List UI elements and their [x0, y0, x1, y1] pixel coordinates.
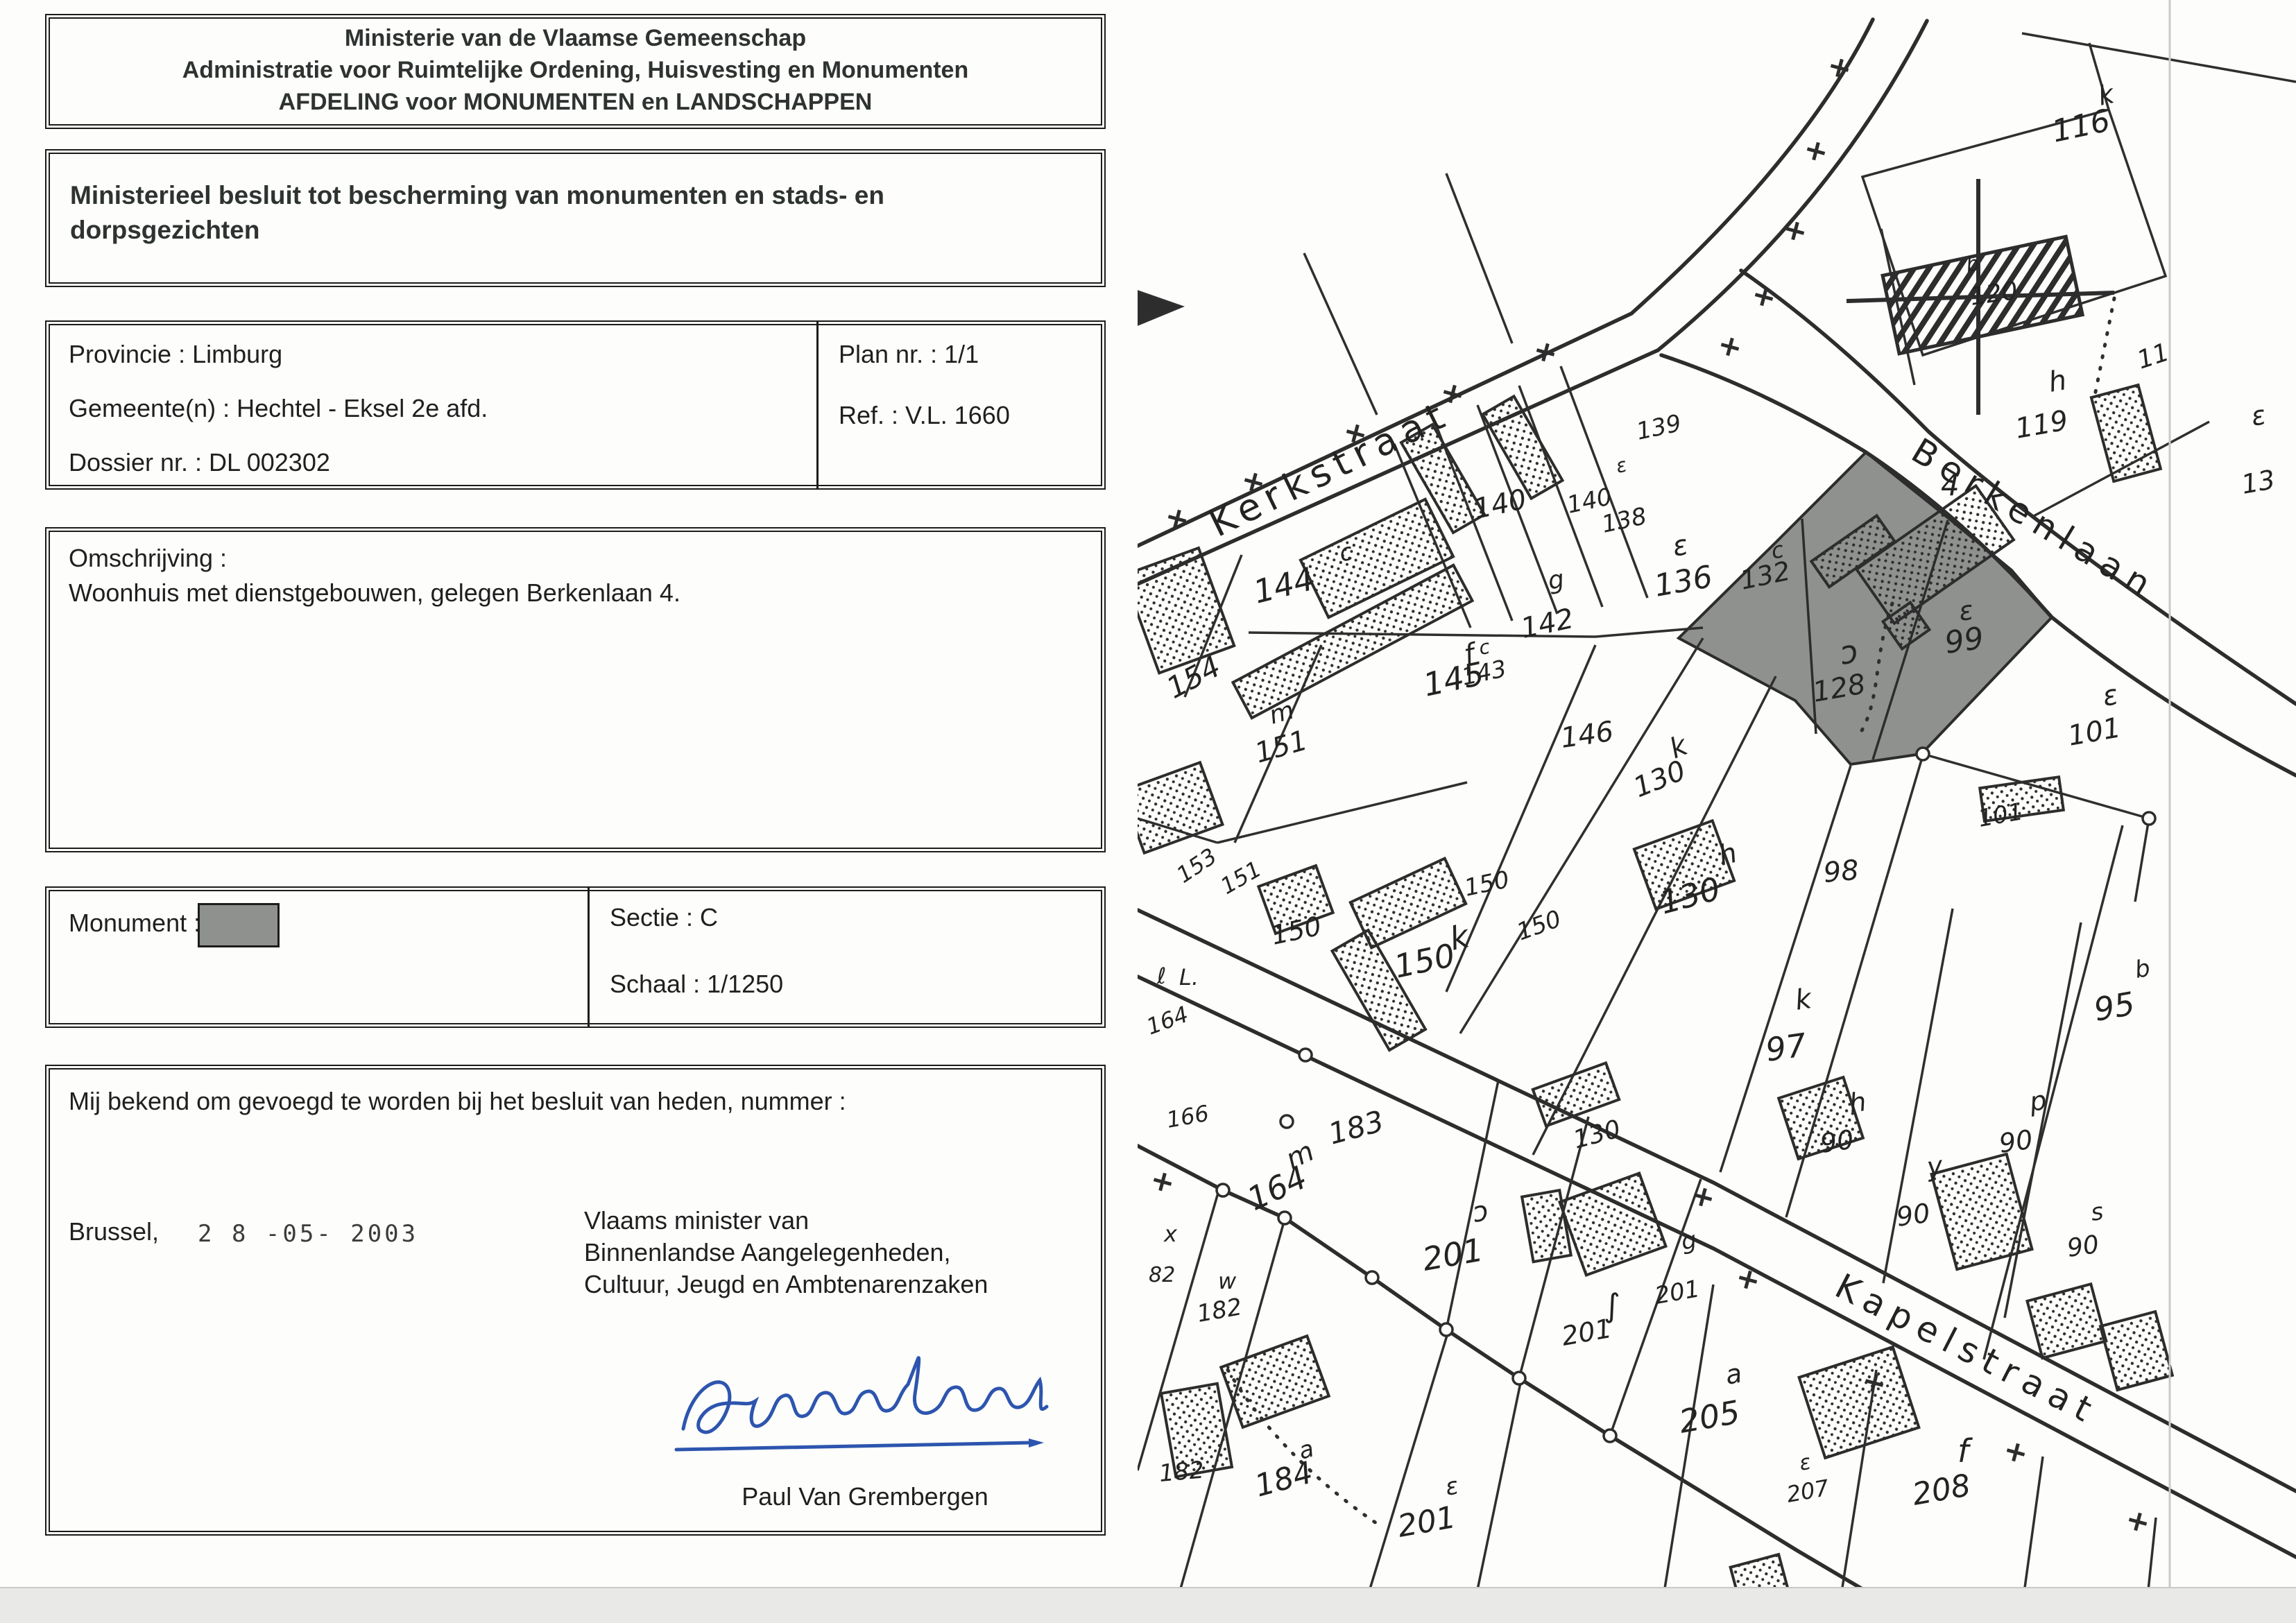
survey-point-icon — [1217, 1184, 1229, 1196]
parcel-label: 90 — [1894, 1198, 1932, 1233]
parcel-label: 99 — [1942, 621, 1986, 661]
survey-point-icon — [1280, 1115, 1293, 1128]
parcel-label: w — [1218, 1268, 1237, 1294]
minister-title: Vlaams minister van Binnenlandse Aangele… — [584, 1205, 988, 1300]
parcel-label: 90 — [2066, 1230, 2101, 1263]
survey-point-icon — [1278, 1212, 1291, 1224]
signature-box: Mij bekend om gevoegd te worden bij het … — [45, 1065, 1106, 1536]
parcel-label: 90 — [1997, 1124, 2034, 1159]
parcel-label: 98 — [1822, 855, 1860, 889]
survey-point-icon — [1513, 1372, 1525, 1384]
survey-point-icon — [1440, 1323, 1453, 1336]
administration-name: Administratie voor Ruimtelijke Ordening,… — [46, 54, 1104, 86]
scanner-strip — [0, 1587, 2296, 1623]
omschrijving-text: Woonhuis met dienstgebouwen, gelegen Ber… — [69, 578, 680, 608]
cell-divider — [588, 888, 590, 1027]
parcel-label: 97 — [1763, 1026, 1808, 1069]
decree-title-box: Ministerieel besluit tot bescherming van… — [45, 149, 1106, 287]
gemeente-row: Gemeente(n) : Hechtel - Eksel 2e afd. — [69, 394, 488, 423]
afdeling-name: AFDELING voor MONUMENTEN en LANDSCHAPPEN — [46, 86, 1104, 118]
bekend-line: Mij bekend om gevoegd te worden bij het … — [69, 1087, 846, 1116]
survey-point-icon — [2143, 812, 2155, 825]
signature — [657, 1340, 1073, 1486]
monument-label: Monument : — [69, 909, 200, 938]
ref-row: Ref. : V.L. 1660 — [839, 401, 1010, 430]
parcel-label: 13 — [2239, 464, 2277, 500]
sectie-row: Sectie : C — [610, 903, 718, 932]
parcel-label: 82 — [1149, 1263, 1175, 1287]
plan-nr-row: Plan nr. : 1/1 — [839, 340, 979, 369]
scanned-decree-page: Ministerie van de Vlaamse Gemeenschap Ad… — [0, 0, 2296, 1623]
ministry-name: Ministerie van de Vlaamse Gemeenschap — [46, 22, 1104, 54]
parcel-label: 95 — [2091, 984, 2138, 1028]
legend-box: Monument : Sectie : C Schaal : 1/1250 — [45, 886, 1106, 1028]
city-label: Brussel, — [69, 1217, 159, 1246]
survey-point-icon — [1917, 748, 1929, 760]
parcel-label: 90 — [1818, 1124, 1856, 1159]
cell-divider — [816, 322, 819, 488]
parcel-label: 182 — [1158, 1456, 1205, 1488]
parcel-label: ℓ — [1156, 963, 1166, 989]
dossier-row: Dossier nr. : DL 002302 — [69, 448, 330, 477]
signatory-name: Paul Van Grembergen — [657, 1482, 1073, 1511]
date-stamp: 2 8 -05- 2003 — [198, 1220, 418, 1248]
parcel-label: 4 — [1941, 468, 1960, 502]
survey-point-icon — [1366, 1271, 1378, 1284]
location-info-box: Provincie : Limburg Gemeente(n) : Hechte… — [45, 320, 1106, 490]
schaal-row: Schaal : 1/1250 — [610, 970, 783, 999]
provincie-row: Provincie : Limburg — [69, 340, 282, 369]
omschrijving-label: Omschrijving : — [69, 544, 227, 573]
cadastral-map: KerkstraatBerkenlaanKapelstraatk116h119b… — [1138, 0, 2296, 1623]
minister-line: Cultuur, Jeugd en Ambtenarenzaken — [584, 1269, 988, 1300]
ministry-header-box: Ministerie van de Vlaamse Gemeenschap Ad… — [45, 14, 1106, 129]
description-box: Omschrijving : Woonhuis met dienstgebouw… — [45, 527, 1106, 852]
survey-point-icon — [1299, 1049, 1312, 1061]
parcel-label: L. — [1179, 964, 1199, 990]
survey-point-icon — [1604, 1429, 1616, 1442]
minister-line: Vlaams minister van — [584, 1205, 988, 1237]
minister-line: Binnenlandse Aangelegenheden, — [584, 1237, 988, 1269]
monument-swatch — [198, 903, 280, 947]
parcel-label: x — [1163, 1221, 1178, 1247]
decree-title: Ministerieel besluit tot bescherming van… — [70, 178, 1027, 248]
